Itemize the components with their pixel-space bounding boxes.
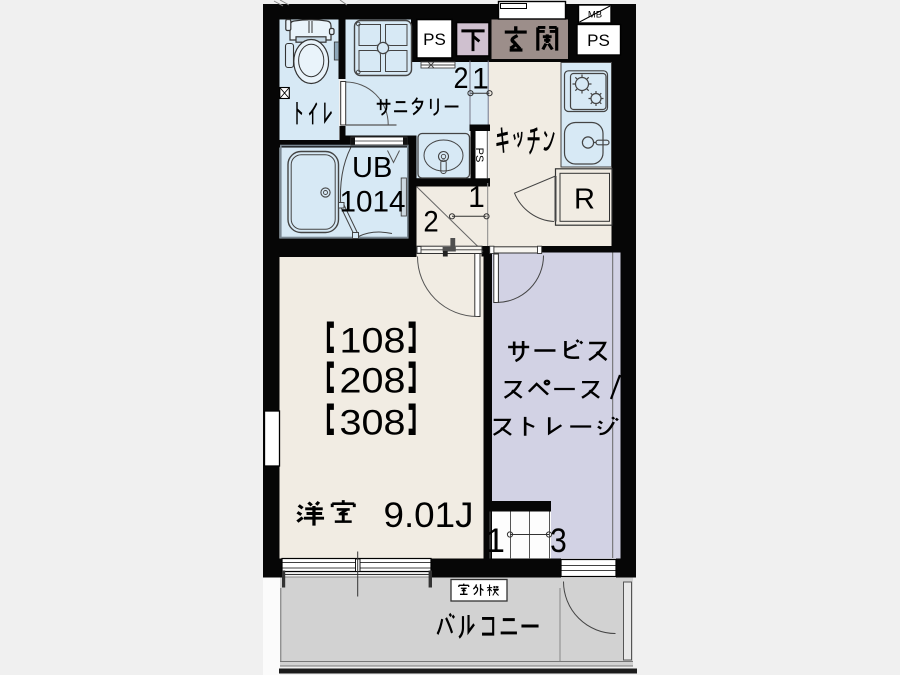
svg-text:PS: PS xyxy=(587,31,610,50)
svg-text:308: 308 xyxy=(340,404,406,443)
svg-text:2: 2 xyxy=(453,62,468,96)
svg-text:1: 1 xyxy=(472,63,489,96)
svg-text:108: 108 xyxy=(340,322,406,361)
svg-text:PS: PS xyxy=(473,148,485,163)
svg-text:PS: PS xyxy=(423,30,446,49)
svg-text:208: 208 xyxy=(340,362,406,401)
svg-text:UB: UB xyxy=(352,152,392,184)
svg-text:1014: 1014 xyxy=(340,186,406,219)
svg-text:MB: MB xyxy=(588,10,602,21)
svg-text:9.01J: 9.01J xyxy=(384,496,474,535)
svg-text:3: 3 xyxy=(550,521,567,559)
svg-text:2: 2 xyxy=(423,205,438,238)
svg-text:1: 1 xyxy=(486,522,505,560)
svg-text:R: R xyxy=(574,184,595,216)
svg-text:1: 1 xyxy=(468,181,485,214)
